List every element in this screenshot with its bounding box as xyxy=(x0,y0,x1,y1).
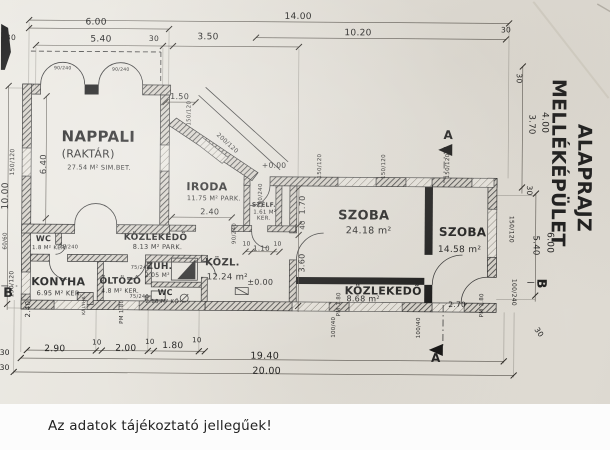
room-label-konyha: KONYHA xyxy=(31,275,85,288)
door-size-nappali-a: 90/240 xyxy=(54,65,72,71)
dim-right-30-top: 30 xyxy=(515,73,524,83)
window-sill-pm180-b: PM 1.80 xyxy=(336,292,342,316)
dim-270: 2.70 xyxy=(448,300,466,309)
room-area-kozlekedo-2: 8.68 m² xyxy=(346,294,380,303)
room-label-wc-2: WC xyxy=(158,288,173,297)
dim-40: 40 xyxy=(299,220,307,230)
window-size-left-small: 60/60 xyxy=(3,232,9,250)
door-size-szelf: 90/240 xyxy=(232,223,238,244)
window-size-top-b: 150/120 xyxy=(381,154,387,179)
dim-top-600: 6.00 xyxy=(85,17,106,27)
dim-10-b: 10 xyxy=(273,241,281,248)
floorplan-drawing: 14.0010.20306.005.4030303.50304.003.7030… xyxy=(0,0,610,406)
room-label-szelf: SZÉLF. xyxy=(252,201,276,209)
section-marker-a-bottom: A xyxy=(431,351,441,365)
window-size-left-lower: 150/120 xyxy=(8,270,15,297)
room-label-iroda: IRODA xyxy=(186,180,227,193)
dim-bottom-10b: 10 xyxy=(145,338,155,346)
dim-total-top-1400: 14.00 xyxy=(284,12,311,22)
room-area-iroda: 11.75 M² PARK. xyxy=(187,194,241,202)
window-size-right-wall: 150/120 xyxy=(508,216,515,243)
dim-bottom-right-30: 30 xyxy=(532,325,545,338)
floorplan-scan-paper: 14.0010.20306.005.4030303.50304.003.7030… xyxy=(0,0,610,404)
door-size-wc-1: 75/240 xyxy=(59,244,78,250)
dim-top-350: 3.50 xyxy=(197,32,218,42)
dim-bottom-200: 2.00 xyxy=(115,344,136,354)
room-area-szoba-2: 14.58 m² xyxy=(438,245,482,255)
window-sill-pm180-c: PM 1.80 xyxy=(479,293,485,317)
door-size-right-wall: 100/240 xyxy=(510,279,517,306)
door-size-wc-2: 75/240 xyxy=(129,294,148,300)
caption-strip: Az adatok tájékoztató jellegűek! xyxy=(0,404,610,450)
dim-top-30-right: 30 xyxy=(501,25,511,34)
title-line-1: ALAPRAJZ xyxy=(573,124,596,232)
dim-left-1000: 10.00 xyxy=(1,182,11,209)
level-mark-kozl: ±0.00 xyxy=(247,278,273,287)
room-label-zuh: ZUH. xyxy=(146,262,172,272)
disclaimer-text: Az adatok tájékoztató jellegűek! xyxy=(48,418,272,434)
dim-top-540: 5.40 xyxy=(90,34,111,44)
dim-170: 1.70 xyxy=(298,195,307,214)
dim-150: 1.50 xyxy=(170,92,189,101)
dim-bottom-1940: 19.40 xyxy=(250,351,279,362)
window-size-left-upper: 150/120 xyxy=(9,148,16,175)
dim-top-1020: 10.20 xyxy=(344,28,371,38)
dim-right-370: 3.70 xyxy=(526,114,536,134)
room-area-nappali: 27.54 M² SIM.BET. xyxy=(67,163,131,171)
window-size-top-c: 150/120 xyxy=(445,153,451,178)
dim-left-240: 2.40 xyxy=(24,301,32,318)
room-label-wc-1: WC xyxy=(36,234,51,243)
window-sill-pm180-a: PM 1.80 xyxy=(119,299,125,323)
dim-top-30-mid: 30 xyxy=(149,34,159,43)
dim-360: 3.60 xyxy=(297,253,306,272)
dim-total-bottom-2000: 20.00 xyxy=(252,366,281,377)
room-label-szoba-2: SZOBA xyxy=(439,225,487,239)
dim-right-540: 5.40 xyxy=(531,236,541,256)
title-line-2: MELLÉKÉPÜLET xyxy=(547,79,572,247)
dim-left-640: 6.40 xyxy=(39,154,49,174)
scanned-floorplan-page: 14.0010.20306.005.4030303.50304.003.7030… xyxy=(0,0,610,450)
plan-labels: 14.0010.20306.005.4030303.50304.003.7030… xyxy=(0,10,596,379)
window-size-step: 150/120 xyxy=(186,100,192,125)
dim-bottom-10c: 10 xyxy=(192,336,202,344)
door-size-nappali-b: 90/240 xyxy=(112,67,130,73)
room-area-szoba-1: 24.18 m² xyxy=(346,225,392,236)
level-mark-entry: +0.00 xyxy=(262,161,287,170)
dim-bottom-10a: 10 xyxy=(92,339,102,347)
room-label-kozl: KÖZL. xyxy=(205,254,240,268)
dim-bottom-180: 1.80 xyxy=(162,341,183,351)
room-sublabel-raktar: (RAKTÁR) xyxy=(62,147,115,160)
room-label-kozlekedo-1: KÖZLEKEDŐ xyxy=(124,232,188,243)
room-label-oltozo: ÖLTÖZŐ xyxy=(99,276,141,287)
dimension-lines xyxy=(7,20,537,378)
section-marker-b-right: B xyxy=(533,278,548,288)
window-size-top-a: 150/120 xyxy=(317,153,323,178)
room-area-wc-2: 2.18 M² KŐ xyxy=(145,298,179,305)
dim-bottom-290: 2.90 xyxy=(44,344,65,354)
window-size-bottom-a: 100/40 xyxy=(331,316,337,337)
window-size-bottom-b: 100/40 xyxy=(416,317,422,338)
dim-240-iroda: 2.40 xyxy=(200,207,219,216)
dim-10-a: 10 xyxy=(242,241,250,248)
dim-top-30-left: 30 xyxy=(6,33,16,42)
dim-right-30-mid: 30 xyxy=(525,185,534,195)
room-area-konyha: 6.95 M² KER. xyxy=(37,289,82,297)
room-area-zuh: 2.05 M² xyxy=(145,272,170,279)
room-finish-szelf: KER. xyxy=(257,216,271,222)
dim-bottom-left-30a: 30 xyxy=(0,348,10,357)
room-area-kozlekedo-1: 8.13 M² PARK. xyxy=(133,243,183,251)
room-label-nappali: NAPPALI xyxy=(61,127,135,146)
dim-110: 1.10 xyxy=(253,245,270,253)
room-area-kozl: 12.24 m² xyxy=(207,272,248,282)
door-size-zuh: 75/240 xyxy=(131,265,150,271)
section-marker-a-top: A xyxy=(443,128,453,142)
dim-bottom-left-30b: 30 xyxy=(0,363,10,372)
dimension-ticks xyxy=(4,17,540,379)
room-label-szoba-1: SZOBA xyxy=(338,208,389,223)
